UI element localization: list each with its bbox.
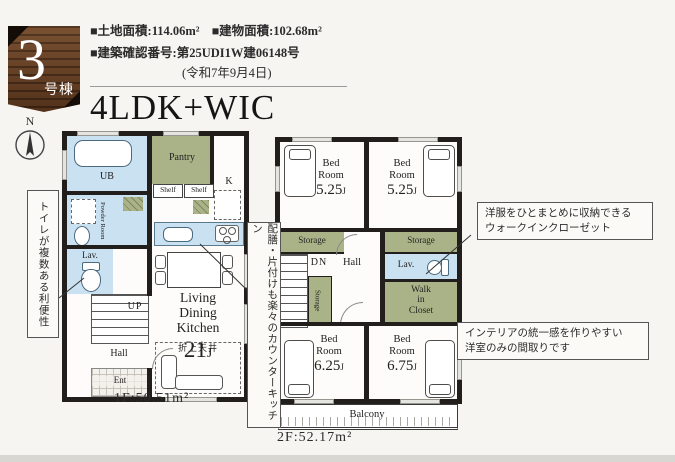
unit-number: 3 <box>17 28 46 92</box>
building-area: ■建物面積:102.68m² <box>212 24 322 38</box>
bottom-strip <box>0 455 675 462</box>
storage-mid: Storage <box>308 276 332 324</box>
burner-icon <box>228 227 236 235</box>
cabinet-icon <box>123 197 143 211</box>
dining-table-icon <box>167 252 221 288</box>
confirmation-date: (令和7年9月4日) <box>182 62 380 81</box>
storage-left-label: Storage <box>280 236 344 246</box>
floor2-plan: Bed Room 5.25J Bed Room 5.25J Storage St… <box>275 137 462 404</box>
basin-icon <box>74 226 90 246</box>
chair-icon <box>222 271 233 285</box>
window <box>163 131 199 136</box>
bedroom2-label: Bed Room 5.25J <box>369 158 435 199</box>
note-interior-line2: 洋室のみの間取りです <box>465 341 641 356</box>
kitchen-label: K <box>219 176 239 187</box>
stairs-down-label: DN <box>306 257 332 268</box>
compass-north-label: N <box>26 114 35 128</box>
room-lav-2f: Lav. <box>385 254 457 279</box>
ldk-line2: Dining <box>152 306 244 321</box>
note-toilet: トイレが複数ある利便性 <box>27 190 59 338</box>
stove-icon <box>215 225 239 242</box>
room-powder-label: Powder Room <box>99 198 106 243</box>
room-lav-1f-label: Lav. <box>67 251 113 261</box>
room-bedroom-3: Bed Room 6.25J <box>280 326 364 399</box>
unit-number-suffix: 号棟 <box>44 79 74 99</box>
storage-left: Storage <box>280 232 344 254</box>
note-kitchen: 配膳・片付けも楽々のカウンターキッチン <box>247 222 281 428</box>
bedroom2-size: 5.25J <box>369 182 435 199</box>
floor1-plan: UB Powder Room Lav. UP Hall Ent Pantry <box>62 131 249 402</box>
balcony-railing <box>281 417 455 426</box>
flyer-page: 3 号棟 ■土地面積:114.06m²■建物面積:102.68m² ■建築確認番… <box>0 0 675 462</box>
balcony: Balcony <box>278 404 458 430</box>
ldk-line1: Living <box>152 291 244 306</box>
window <box>77 131 119 136</box>
room-lav-2f-label: Lav. <box>389 260 423 270</box>
header: ■土地面積:114.06m²■建物面積:102.68m² ■建築確認番号:第25… <box>90 20 380 128</box>
note-kitchen-text: 配膳・片付けも楽々のカウンターキッチン <box>249 223 279 427</box>
entrance-label: Ent <box>92 376 148 386</box>
window <box>292 137 332 142</box>
note-interior: インテリアの統一感を作りやすい 洋室のみの間取りです <box>457 322 649 360</box>
note-wic-line2: ウォークインクローゼット <box>485 221 645 236</box>
storage-right-label: Storage <box>385 236 457 246</box>
walk-in-closet-label: Walk in Closet <box>385 285 457 316</box>
window <box>398 137 438 142</box>
unit-number-badge: 3 号棟 <box>8 26 80 112</box>
kitchen-counter <box>154 222 244 246</box>
sink-icon <box>163 227 193 242</box>
bedroom1-size: 5.25J <box>298 182 364 199</box>
room-bedroom-2: Bed Room 5.25J <box>369 142 457 228</box>
washer-icon <box>71 199 96 224</box>
land-area: ■土地面積:114.06m² <box>90 24 200 38</box>
chair-icon <box>155 271 166 285</box>
window <box>62 150 67 180</box>
room-ub-label: UB <box>67 171 147 182</box>
compass-icon: N <box>13 112 47 168</box>
floor2-area-label: 2F:52.17m² <box>277 430 352 446</box>
room-powder: Powder Room <box>67 195 147 245</box>
sofa-icon <box>175 375 223 390</box>
room-lav-1f: Lav. <box>67 249 113 294</box>
confirmation-number: ■建築確認番号:第25UDI1W建06148号 <box>90 42 380 61</box>
divider <box>90 86 347 87</box>
burner-icon <box>219 227 227 235</box>
pillow-icon <box>288 384 310 395</box>
ldk-line3: Kitchen <box>152 321 244 336</box>
note-wic-line1: 洋服をひとまとめに収納できる <box>485 206 645 221</box>
page-title: 4LDK+WIC <box>90 88 380 128</box>
shelf-right-label: Shelf <box>185 186 213 194</box>
note-toilet-text: トイレが複数ある利便性 <box>35 201 50 328</box>
burner-icon <box>223 236 231 244</box>
room-pantry-label: Pantry <box>152 152 212 163</box>
room-ub: UB <box>67 136 147 191</box>
bedroom4-label: Bed Room 6.75J <box>369 334 435 375</box>
floor1-area-label: 1F:50.51m² <box>114 391 189 407</box>
bedroom3-label: Bed Room 6.25J <box>296 334 362 375</box>
bedroom3-size: 6.25J <box>296 358 362 375</box>
note-interior-line1: インテリアの統一感を作りやすい <box>465 326 641 341</box>
storage-right: Storage <box>385 232 457 254</box>
cupboard-icon <box>193 200 209 214</box>
toilet-icon <box>441 259 449 276</box>
bedroom1-label: Bed Room 5.25J <box>298 158 364 199</box>
shelf-left-label: Shelf <box>154 186 182 194</box>
toilet-icon <box>81 269 101 292</box>
hall-2f-label: Hall <box>332 257 372 269</box>
room-pantry: Pantry <box>152 136 212 184</box>
area-figures: ■土地面積:114.06m²■建物面積:102.68m² <box>90 20 380 39</box>
window <box>275 166 280 192</box>
toilet-icon <box>427 260 442 275</box>
pillow-icon <box>429 384 451 395</box>
note-wic: 洋服をひとまとめに収納できる ウォークインクローゼット <box>477 202 653 240</box>
shelf-right: Shelf <box>184 184 214 198</box>
room-bedroom-4: Bed Room 6.75J <box>369 326 457 399</box>
bedroom4-size: 6.75J <box>369 358 435 375</box>
wall <box>210 136 214 188</box>
stairs-down <box>280 254 308 328</box>
hall-1f-label: Hall <box>91 348 147 359</box>
shelf-left: Shelf <box>153 184 183 198</box>
storage-mid-label: Storage <box>313 280 321 322</box>
walk-in-closet: Walk in Closet <box>385 282 457 326</box>
fridge-icon <box>214 190 241 220</box>
chair-icon <box>222 255 233 269</box>
bathtub-icon <box>74 140 132 167</box>
window <box>457 166 462 192</box>
stairs-up-label: UP <box>115 301 155 312</box>
chair-icon <box>155 255 166 269</box>
room-bedroom-1: Bed Room 5.25J <box>280 142 364 228</box>
